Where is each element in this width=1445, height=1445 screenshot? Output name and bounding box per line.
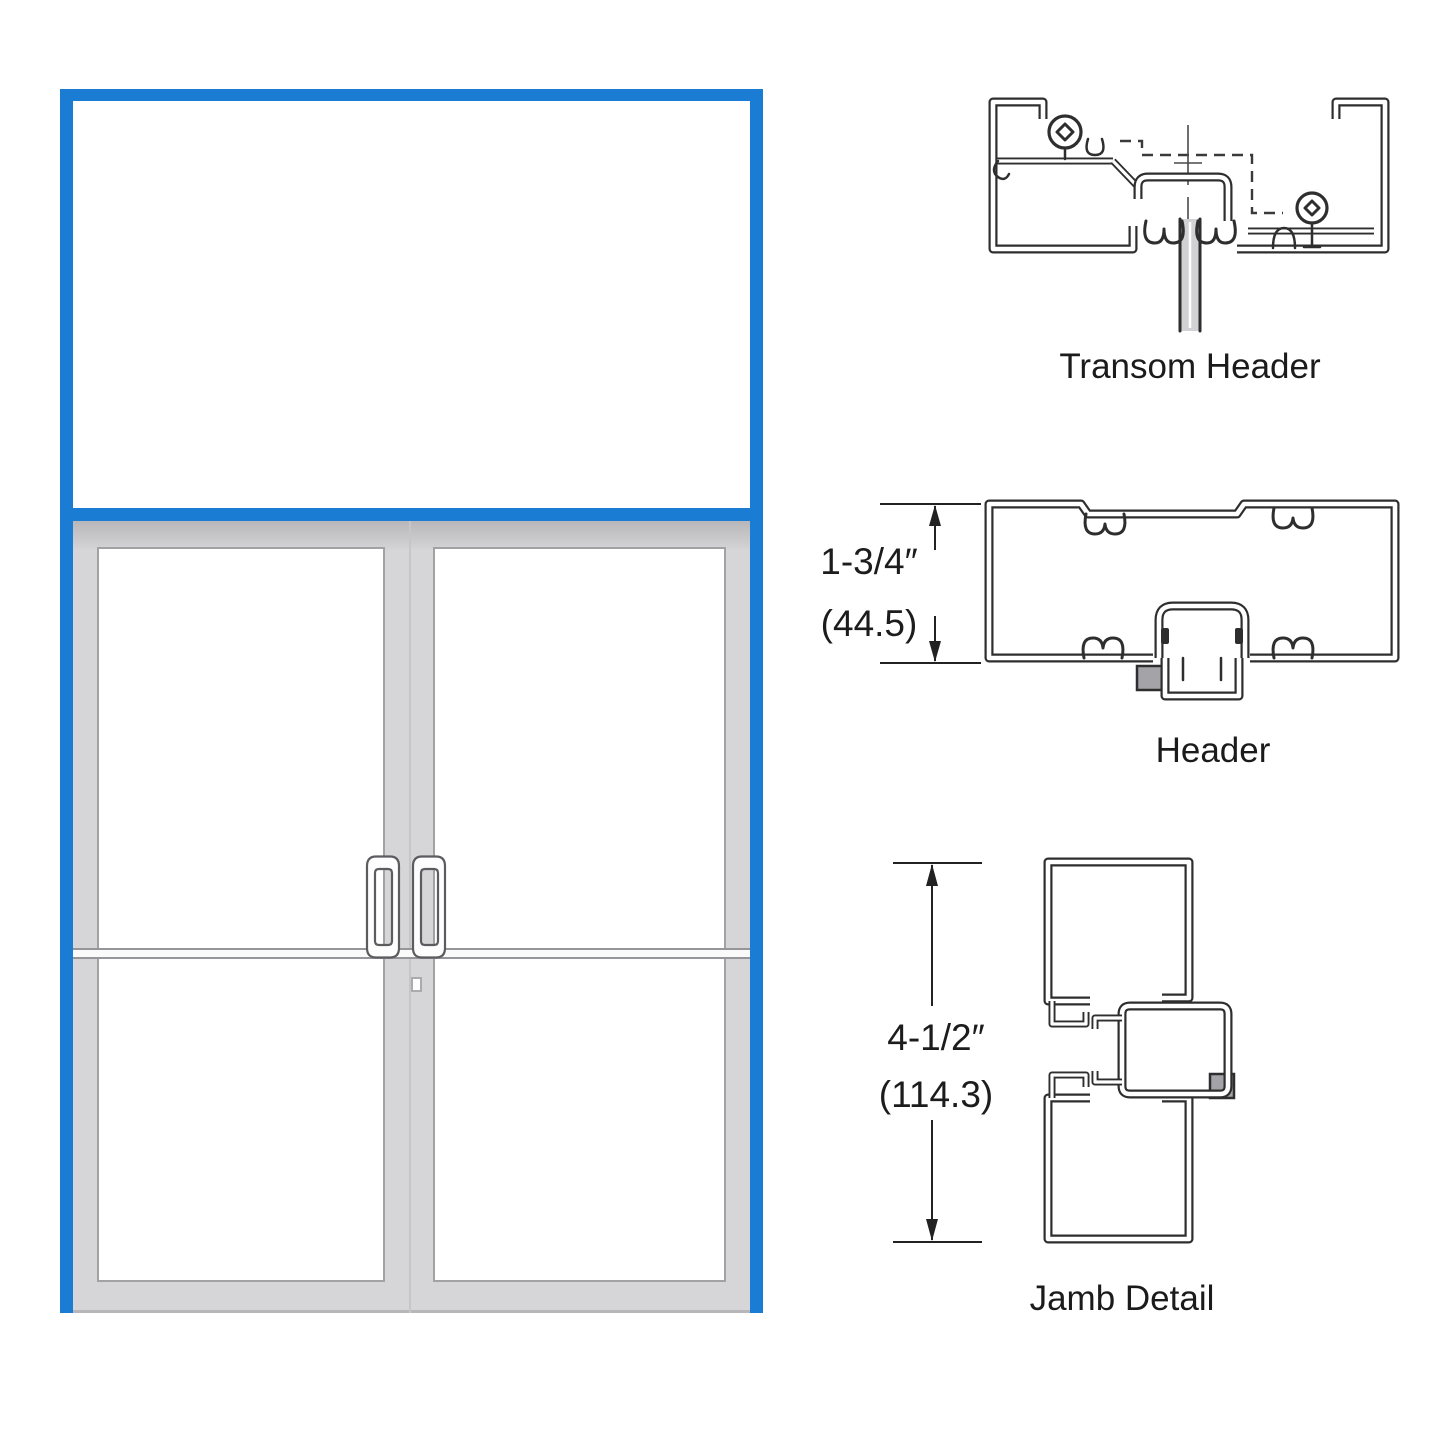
- stop-block: [1137, 666, 1163, 690]
- double-door-unit: [73, 521, 750, 1313]
- jamb-dimension: 4-1/2″ (114.3): [879, 863, 994, 1242]
- frame-jamb-left: [60, 89, 73, 1313]
- door-elevation: [60, 89, 763, 1313]
- header-dim-imperial: 1-3/4″: [820, 541, 917, 582]
- header-dim-metric: (44.5): [821, 603, 918, 644]
- fastener-left-icon: [1049, 116, 1081, 159]
- header-label: Header: [1013, 731, 1413, 771]
- transom-header-label: Transom Header: [985, 347, 1395, 387]
- frame-jamb-right: [750, 89, 763, 1313]
- transom-header-drawing: [970, 85, 1400, 345]
- pull-handle-right-icon: [413, 857, 445, 958]
- door-leaf-left-glass: [97, 547, 385, 1282]
- gasket-loop-left: [1087, 139, 1104, 155]
- header-drawing: 1-3/4″ (44.5): [785, 490, 1405, 730]
- transom-bar: [60, 508, 763, 521]
- glazing-gasket-left: [1145, 221, 1184, 243]
- header-dimension: 1-3/4″ (44.5): [820, 504, 981, 663]
- pull-handle-left-icon: [367, 857, 399, 958]
- clip-hook: [1161, 628, 1169, 644]
- jamb-detail-drawing: 4-1/2″ (114.3): [790, 848, 1250, 1253]
- glazing-gasket-right: [1197, 221, 1236, 243]
- clip-hook: [1235, 628, 1243, 644]
- jamb-dim-imperial: 4-1/2″: [887, 1017, 984, 1058]
- jamb-dim-metric: (114.3): [879, 1074, 994, 1115]
- door-leaf-right-glass: [433, 547, 726, 1282]
- fastener-right-icon: [1297, 193, 1327, 247]
- jamb-detail-label: Jamb Detail: [922, 1279, 1322, 1319]
- page: Transom Header 1-3/4″ (44.5) Header: [0, 0, 1445, 1445]
- screw-boss: [1273, 508, 1313, 528]
- frame-head: [60, 89, 763, 101]
- cylinder-lock-icon: [411, 977, 422, 992]
- transom-glass: [73, 101, 750, 508]
- pull-handles-icon: [366, 855, 446, 959]
